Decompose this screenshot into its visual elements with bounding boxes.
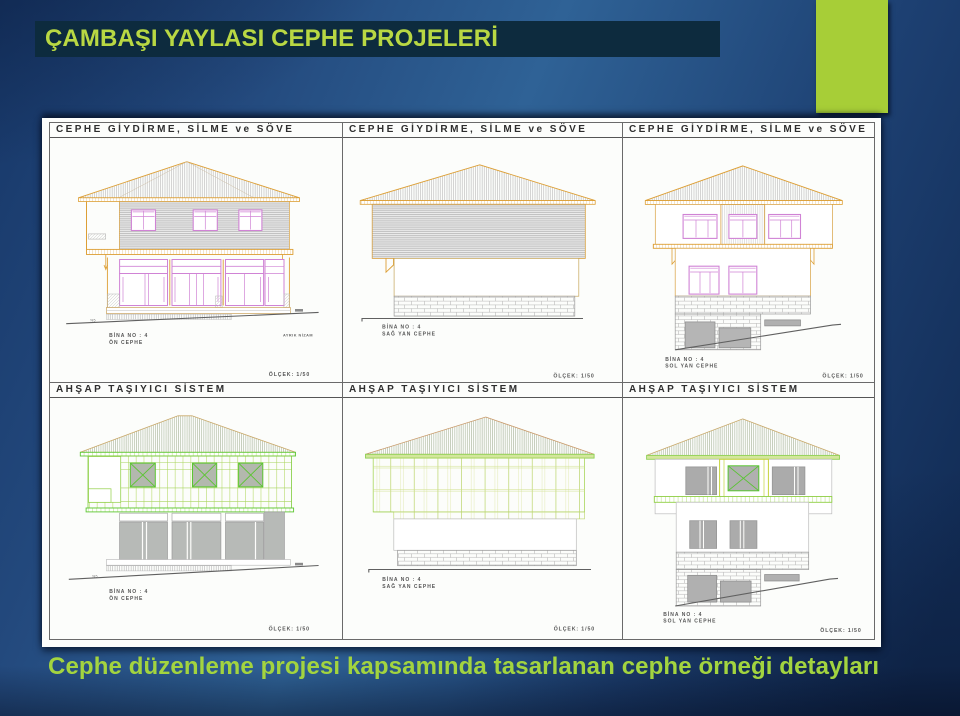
svg-text:AYRIK NİZAM: AYRIK NİZAM: [283, 334, 313, 338]
svg-text:BİNA NO : 4: BİNA NO : 4: [382, 576, 421, 583]
svg-text:ÖLÇEK: 1/50: ÖLÇEK: 1/50: [822, 373, 863, 380]
svg-text:BİNA NO : 4: BİNA NO : 4: [109, 588, 148, 595]
svg-text:SAĞ YAN CEPHE: SAĞ YAN CEPHE: [382, 582, 436, 590]
svg-text:ÖN CEPHE: ÖN CEPHE: [109, 339, 143, 346]
svg-text:%5: %5: [90, 319, 96, 323]
svg-text:ÖLÇEK: 1/50: ÖLÇEK: 1/50: [269, 626, 310, 633]
svg-text:ÖLÇEK: 1/50: ÖLÇEK: 1/50: [269, 371, 310, 378]
svg-text:SOL YAN CEPHE: SOL YAN CEPHE: [663, 618, 716, 624]
svg-text:ÖN CEPHE: ÖN CEPHE: [109, 595, 143, 602]
svg-text:SAĞ YAN CEPHE: SAĞ YAN CEPHE: [382, 329, 436, 337]
svg-text:BİNA NO : 4: BİNA NO : 4: [382, 324, 421, 331]
svg-text:%5: %5: [92, 575, 98, 579]
svg-text:ÖLÇEK: 1/50: ÖLÇEK: 1/50: [820, 627, 861, 634]
svg-text:SOL YAN CEPHE: SOL YAN CEPHE: [665, 363, 718, 369]
svg-text:ÖLÇEK: 1/50: ÖLÇEK: 1/50: [554, 626, 595, 633]
svg-text:ÖLÇEK: 1/50: ÖLÇEK: 1/50: [553, 373, 594, 380]
svg-text:BİNA NO : 4: BİNA NO : 4: [663, 611, 702, 618]
svg-text:BİNA NO : 4: BİNA NO : 4: [109, 332, 148, 339]
svg-text:BİNA NO : 4: BİNA NO : 4: [665, 356, 704, 363]
